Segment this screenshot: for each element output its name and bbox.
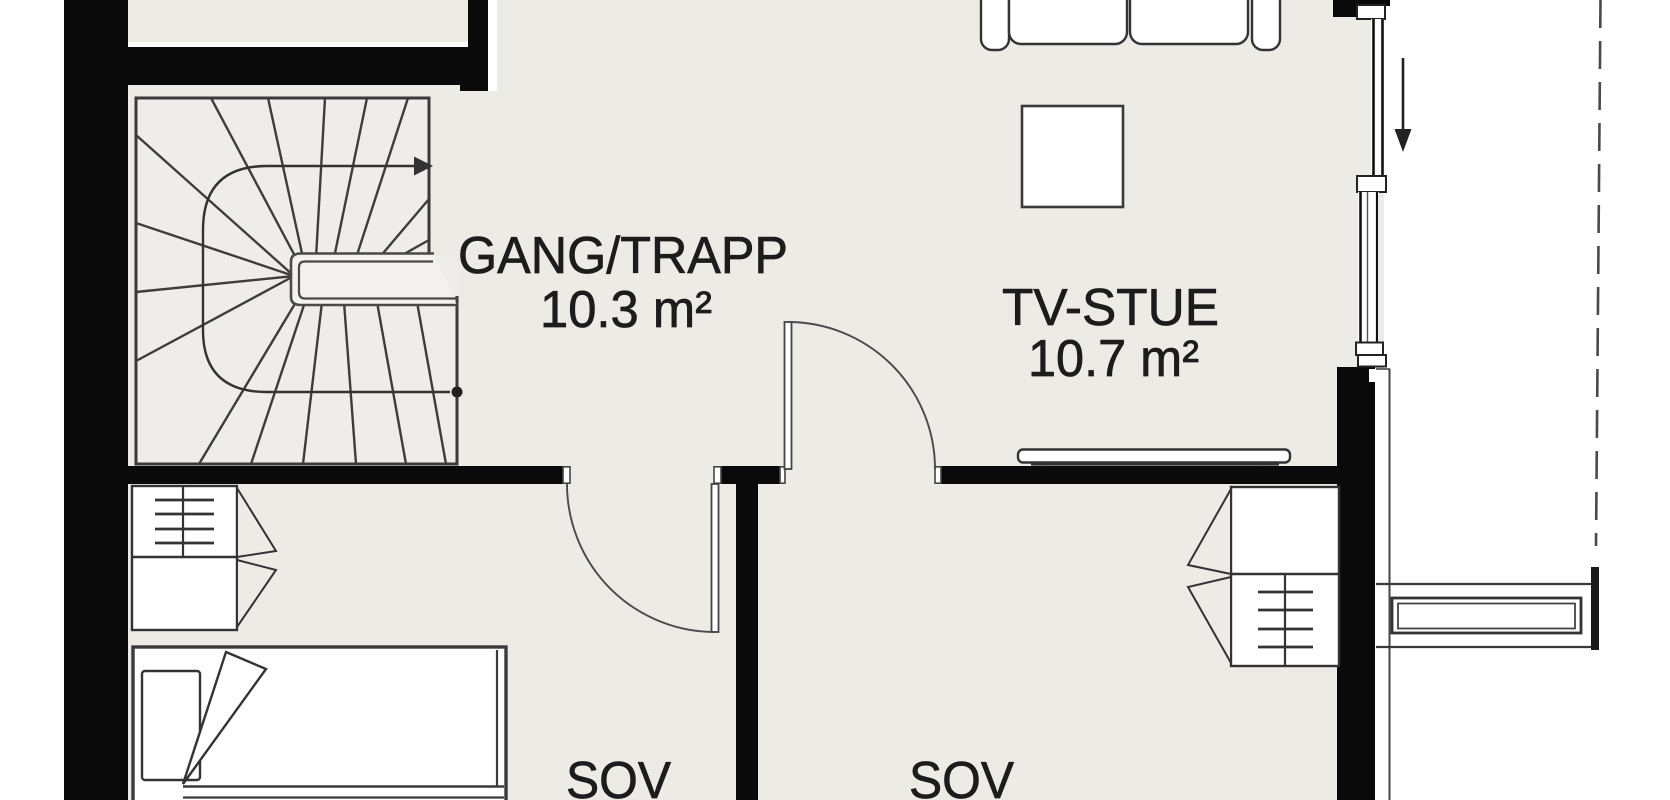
svg-text:SOV: SOV <box>566 752 671 800</box>
svg-text:SOV: SOV <box>909 752 1014 800</box>
svg-text:10.3 m²: 10.3 m² <box>540 281 712 339</box>
svg-text:10.7 m²: 10.7 m² <box>1028 330 1199 388</box>
svg-text:TV-STUE: TV-STUE <box>1002 279 1219 337</box>
svg-text:GANG/TRAPP: GANG/TRAPP <box>458 227 788 285</box>
